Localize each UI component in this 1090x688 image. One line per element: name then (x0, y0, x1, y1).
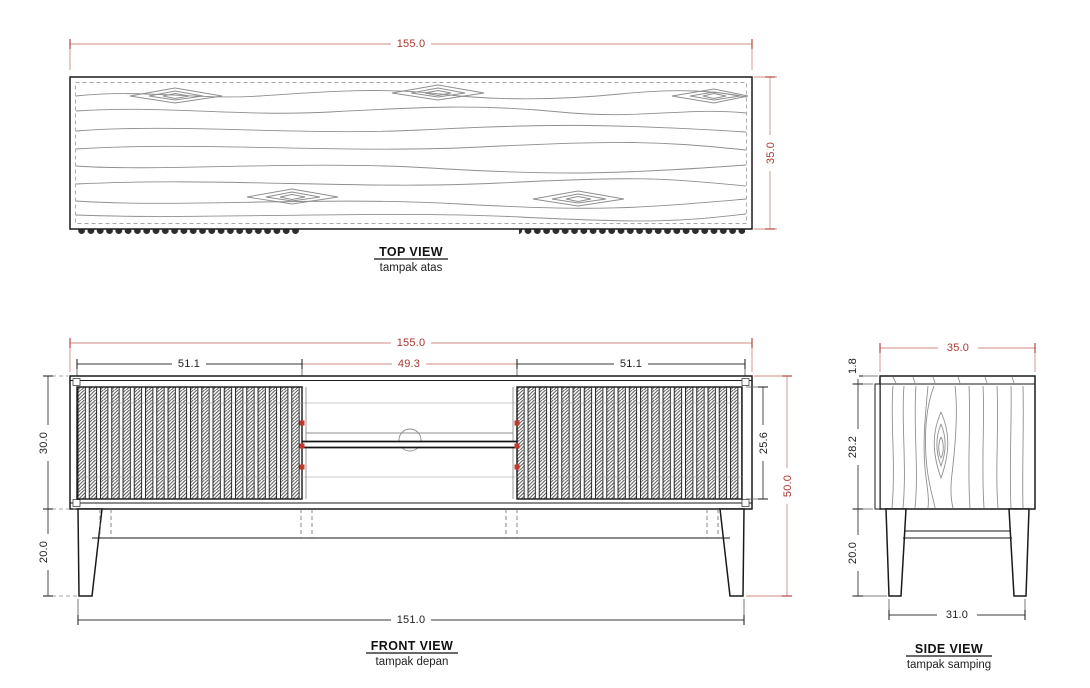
side-view-top-thickness-label: 1.8 (847, 358, 859, 374)
front-view-corner-notch-br (742, 500, 749, 507)
side-view-base-depth-dimension: 31.0 (889, 599, 1025, 621)
side-view-base (886, 509, 1029, 596)
side-view-depth-label: 35.0 (947, 342, 969, 354)
technical-drawing-sheet: 155.0 (0, 0, 1090, 688)
front-view-center-width-label: 49.3 (398, 358, 420, 370)
front-view-body-height-label: 30.0 (38, 432, 50, 454)
top-view: 155.0 (70, 38, 777, 274)
front-view-overall-width-label: 155.0 (397, 337, 426, 349)
top-view-right-slat-ends (519, 230, 745, 237)
top-view-width-dimension: 155.0 (70, 38, 752, 70)
front-view-left-leg (78, 509, 102, 596)
side-view-base-depth-label: 31.0 (946, 609, 968, 621)
side-view-leg-height-label: 20.0 (847, 542, 859, 564)
front-view-title: FRONT VIEW (371, 639, 453, 653)
front-view-overall-height-label: 50.0 (782, 475, 794, 497)
side-view-subtitle: tampak samping (907, 659, 991, 671)
side-view: 35.0 (847, 342, 1035, 671)
front-view-base-width-dimension: 151.0 (78, 599, 744, 626)
front-view-leg-height-label: 20.0 (38, 541, 50, 563)
side-view-title: SIDE VIEW (915, 642, 983, 656)
side-view-body-height-label: 28.2 (847, 436, 859, 458)
front-view-base (78, 509, 744, 596)
front-view-door-height-label: 25.6 (758, 432, 770, 454)
side-view-door-front-edge (875, 384, 880, 509)
front-view-hidden-lines (100, 509, 718, 538)
top-view-left-slat-ends (77, 230, 300, 237)
front-view-left-door-width-label: 51.1 (178, 358, 200, 370)
side-view-depth-dimension: 35.0 (880, 342, 1035, 372)
front-view: 155.0 51.1 49.3 51.1 (38, 337, 794, 668)
drawing-canvas: 155.0 (0, 0, 1090, 688)
top-view-title: TOP VIEW (379, 245, 443, 259)
top-view-depth-dimension: 35.0 (754, 77, 777, 229)
front-view-corner-notch-bl (73, 500, 80, 507)
front-view-left-door (77, 387, 302, 499)
front-view-right-door (517, 387, 742, 499)
top-view-width-label: 155.0 (397, 38, 426, 50)
front-view-corner-notch-tr (742, 379, 749, 386)
side-view-back-leg (1009, 509, 1029, 596)
front-view-corner-notch-tl (73, 379, 80, 386)
front-view-subtitle: tampak depan (376, 656, 449, 668)
top-view-subtitle: tampak atas (380, 262, 443, 274)
side-view-front-leg (886, 509, 906, 596)
front-view-right-door-width-label: 51.1 (620, 358, 642, 370)
front-view-base-width-label: 151.0 (397, 614, 426, 626)
front-view-right-dimensions: 25.6 50.0 (746, 376, 794, 596)
front-view-right-leg (720, 509, 744, 596)
top-view-depth-label: 35.0 (765, 142, 777, 164)
